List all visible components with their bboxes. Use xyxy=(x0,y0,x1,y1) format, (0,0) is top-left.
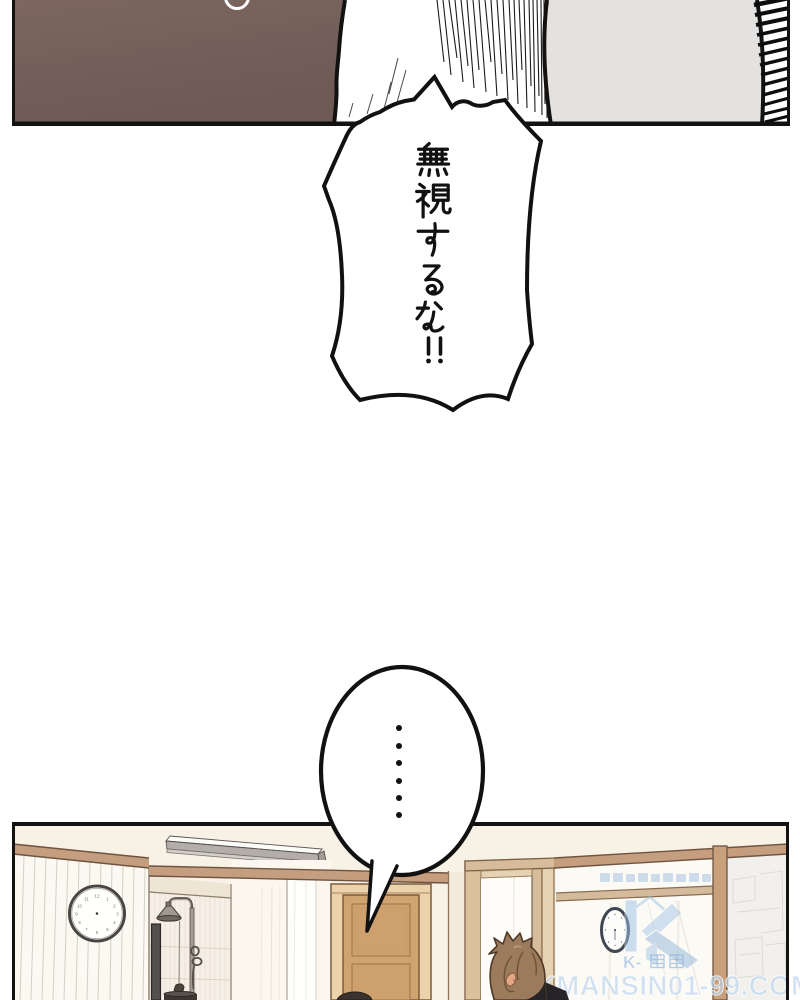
svg-text:12: 12 xyxy=(95,894,100,899)
svg-text:10: 10 xyxy=(77,904,82,909)
svg-text:K-: K- xyxy=(623,952,642,972)
svg-text:11: 11 xyxy=(84,897,89,902)
svg-text:KMANSIN01-99.COM: KMANSIN01-99.COM xyxy=(536,970,800,1000)
